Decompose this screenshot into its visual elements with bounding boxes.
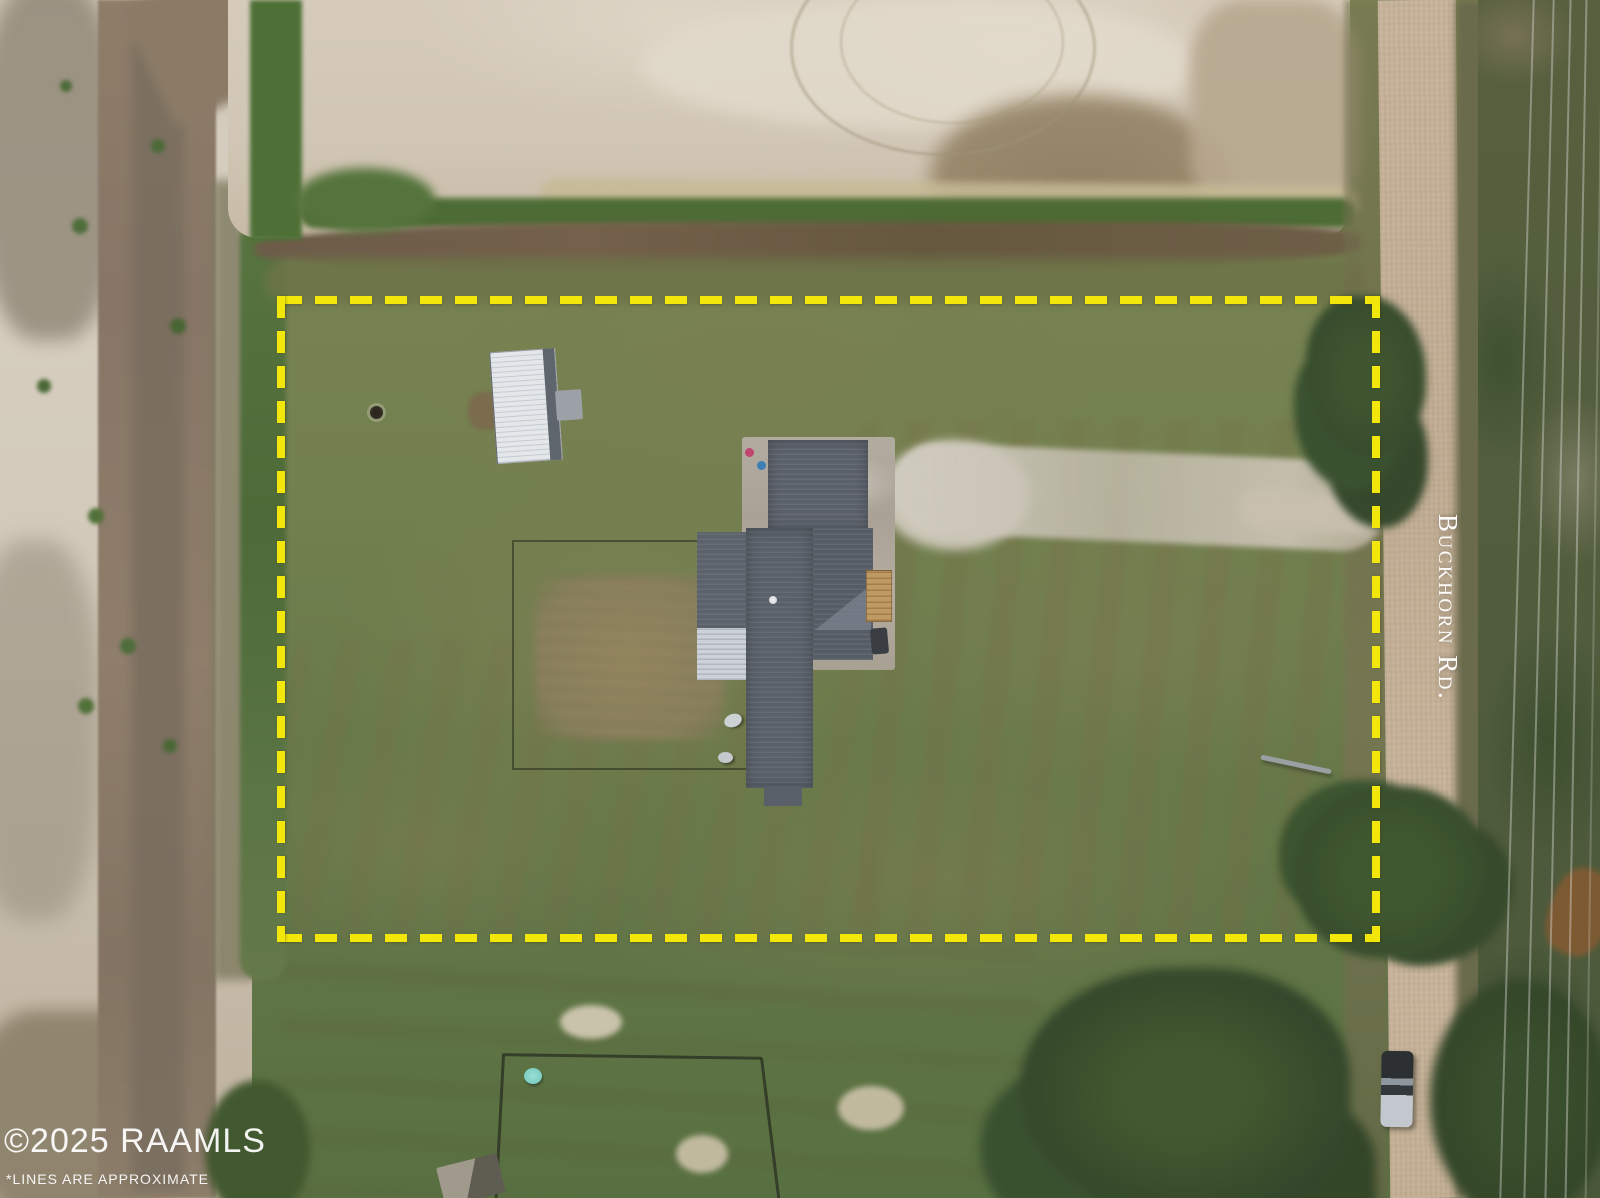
hedge-clump xyxy=(295,168,435,232)
garden-bush xyxy=(616,516,676,592)
property-boundary-right xyxy=(1372,296,1380,942)
aerial-property-photo: Buckhorn Rd. ©2025 RAAMLS *LINES ARE APP… xyxy=(0,0,1600,1198)
house-main-roof xyxy=(746,528,813,788)
sandy-patch xyxy=(838,1086,904,1130)
satellite-dish xyxy=(718,752,733,763)
scrub-patch-mid-left xyxy=(0,540,100,920)
lines-approximate-disclaimer: *LINES ARE APPROXIMATE xyxy=(6,1171,209,1187)
yard-object-blue xyxy=(757,461,766,470)
sandy-patch xyxy=(560,1005,622,1039)
porch-silver-roof xyxy=(697,628,746,680)
mls-watermark: ©2025 RAAMLS xyxy=(4,1124,266,1158)
hedge-strip-top-left xyxy=(250,0,302,240)
roof-extension xyxy=(764,786,802,806)
scattered-shrubs xyxy=(60,80,72,92)
wet-track-left-road xyxy=(132,40,184,1190)
driveway-road-connection xyxy=(1239,488,1381,535)
property-boundary-left xyxy=(277,296,285,942)
mowing-stripes-bottom xyxy=(280,945,1040,1198)
garage-roof xyxy=(768,440,868,530)
ac-unit xyxy=(870,627,889,654)
wood-deck xyxy=(866,570,892,622)
tree-bottom-center xyxy=(1020,968,1350,1198)
shed-ramp xyxy=(555,389,583,421)
property-boundary-bottom xyxy=(280,934,1380,942)
parked-vehicle xyxy=(1380,1051,1413,1128)
ground-hole xyxy=(370,406,383,419)
yard-object-pink xyxy=(745,448,754,457)
property-boundary-top xyxy=(280,296,1378,304)
teal-yard-object xyxy=(524,1068,542,1084)
roof-vent xyxy=(769,596,777,604)
shed-roof xyxy=(489,348,563,464)
road-name-label: Buckhorn Rd. xyxy=(1432,514,1463,701)
sandy-patch xyxy=(676,1135,728,1173)
